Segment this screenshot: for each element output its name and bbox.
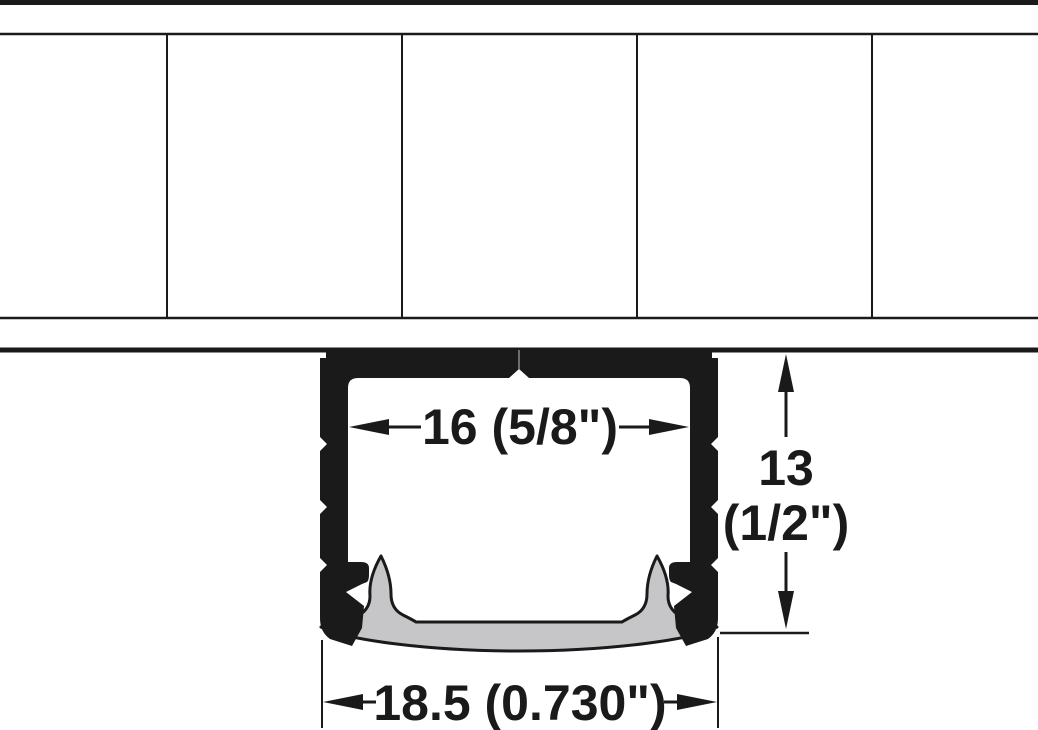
dim-inner-width: 16 (5/8"): [349, 399, 689, 455]
diffuser-lens: [321, 556, 717, 651]
outer-width-arrow-right-icon: [677, 694, 717, 710]
panel-section: [0, 3, 1038, 351]
inner-width-arrow-left-icon: [349, 419, 389, 435]
inner-width-arrow-right-icon: [649, 419, 689, 435]
height-label-fraction: (1/2"): [723, 495, 850, 551]
height-arrow-down-icon: [778, 591, 794, 629]
outer-width-arrow-left-icon: [323, 694, 363, 710]
profile-cross-section-drawing: 16 (5/8") 13 (1/2") 18.5 (0.730"): [0, 0, 1038, 730]
height-label-value: 13: [758, 440, 814, 496]
technical-drawing-canvas: 16 (5/8") 13 (1/2") 18.5 (0.730"): [0, 0, 1038, 730]
dim-height: 13 (1/2"): [720, 354, 849, 633]
inner-width-label: 16 (5/8"): [422, 399, 618, 455]
height-arrow-up-icon: [778, 354, 794, 392]
outer-width-label: 18.5 (0.730"): [373, 675, 666, 730]
